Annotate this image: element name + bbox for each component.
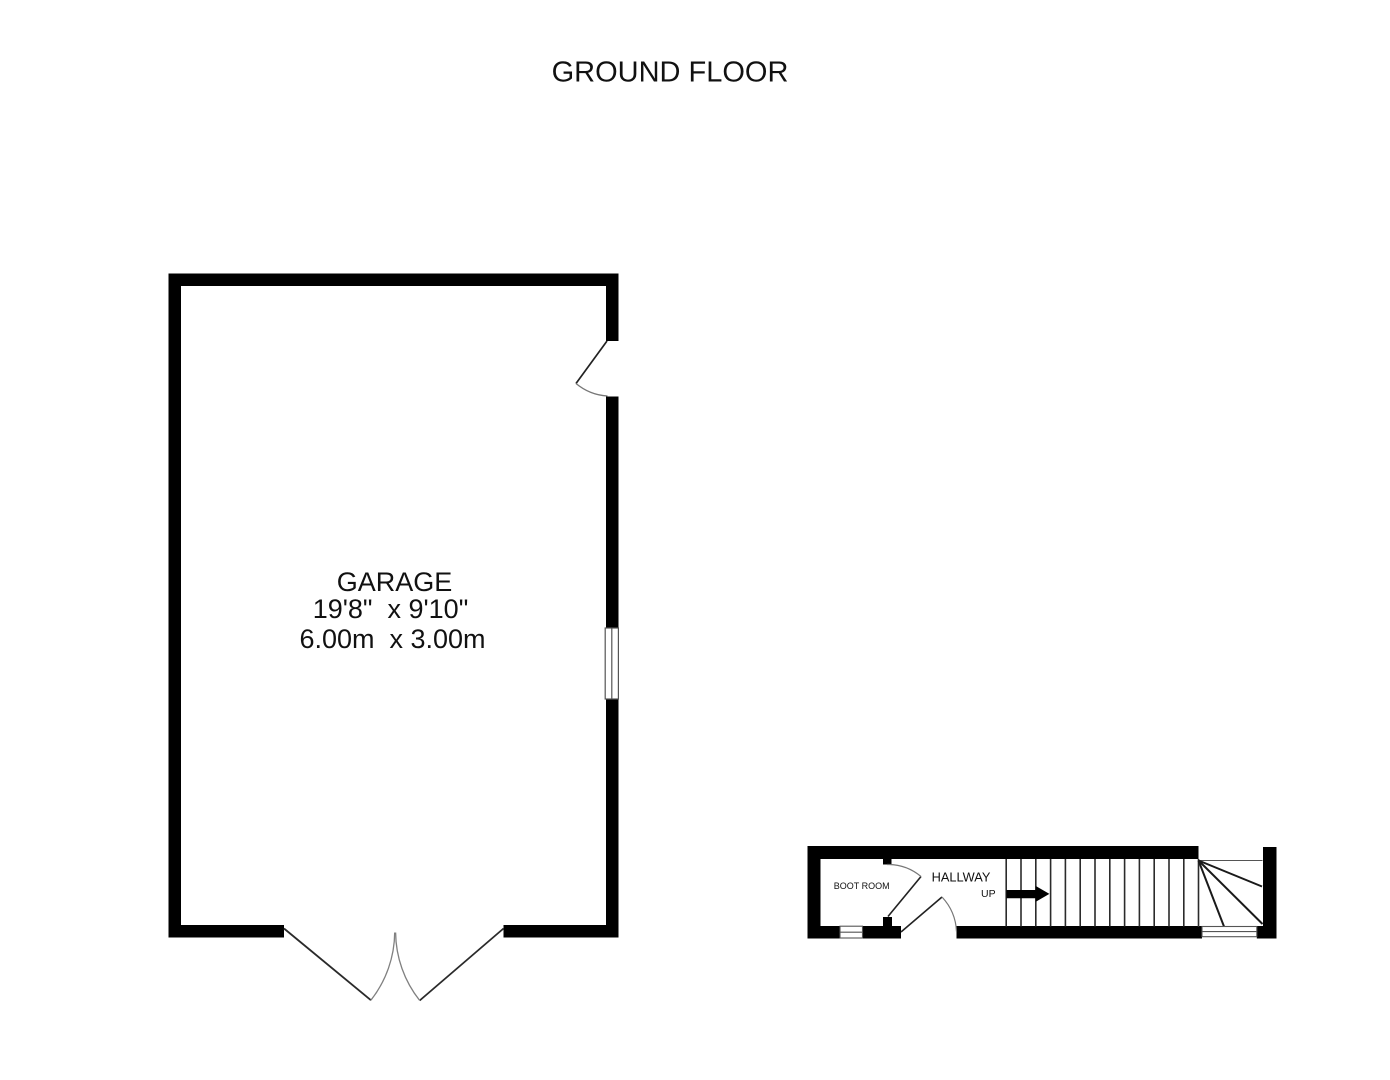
svg-text:HALLWAY: HALLWAY: [932, 870, 991, 885]
svg-text:UP: UP: [981, 888, 996, 900]
svg-text:BOOT ROOM: BOOT ROOM: [834, 881, 890, 891]
svg-text:19'8" x 9'10": 19'8" x 9'10": [313, 594, 469, 624]
svg-text:GROUND FLOOR: GROUND FLOOR: [552, 57, 789, 89]
svg-text:GARAGE: GARAGE: [337, 567, 453, 597]
svg-text:6.00m x 3.00m: 6.00m x 3.00m: [299, 624, 485, 654]
